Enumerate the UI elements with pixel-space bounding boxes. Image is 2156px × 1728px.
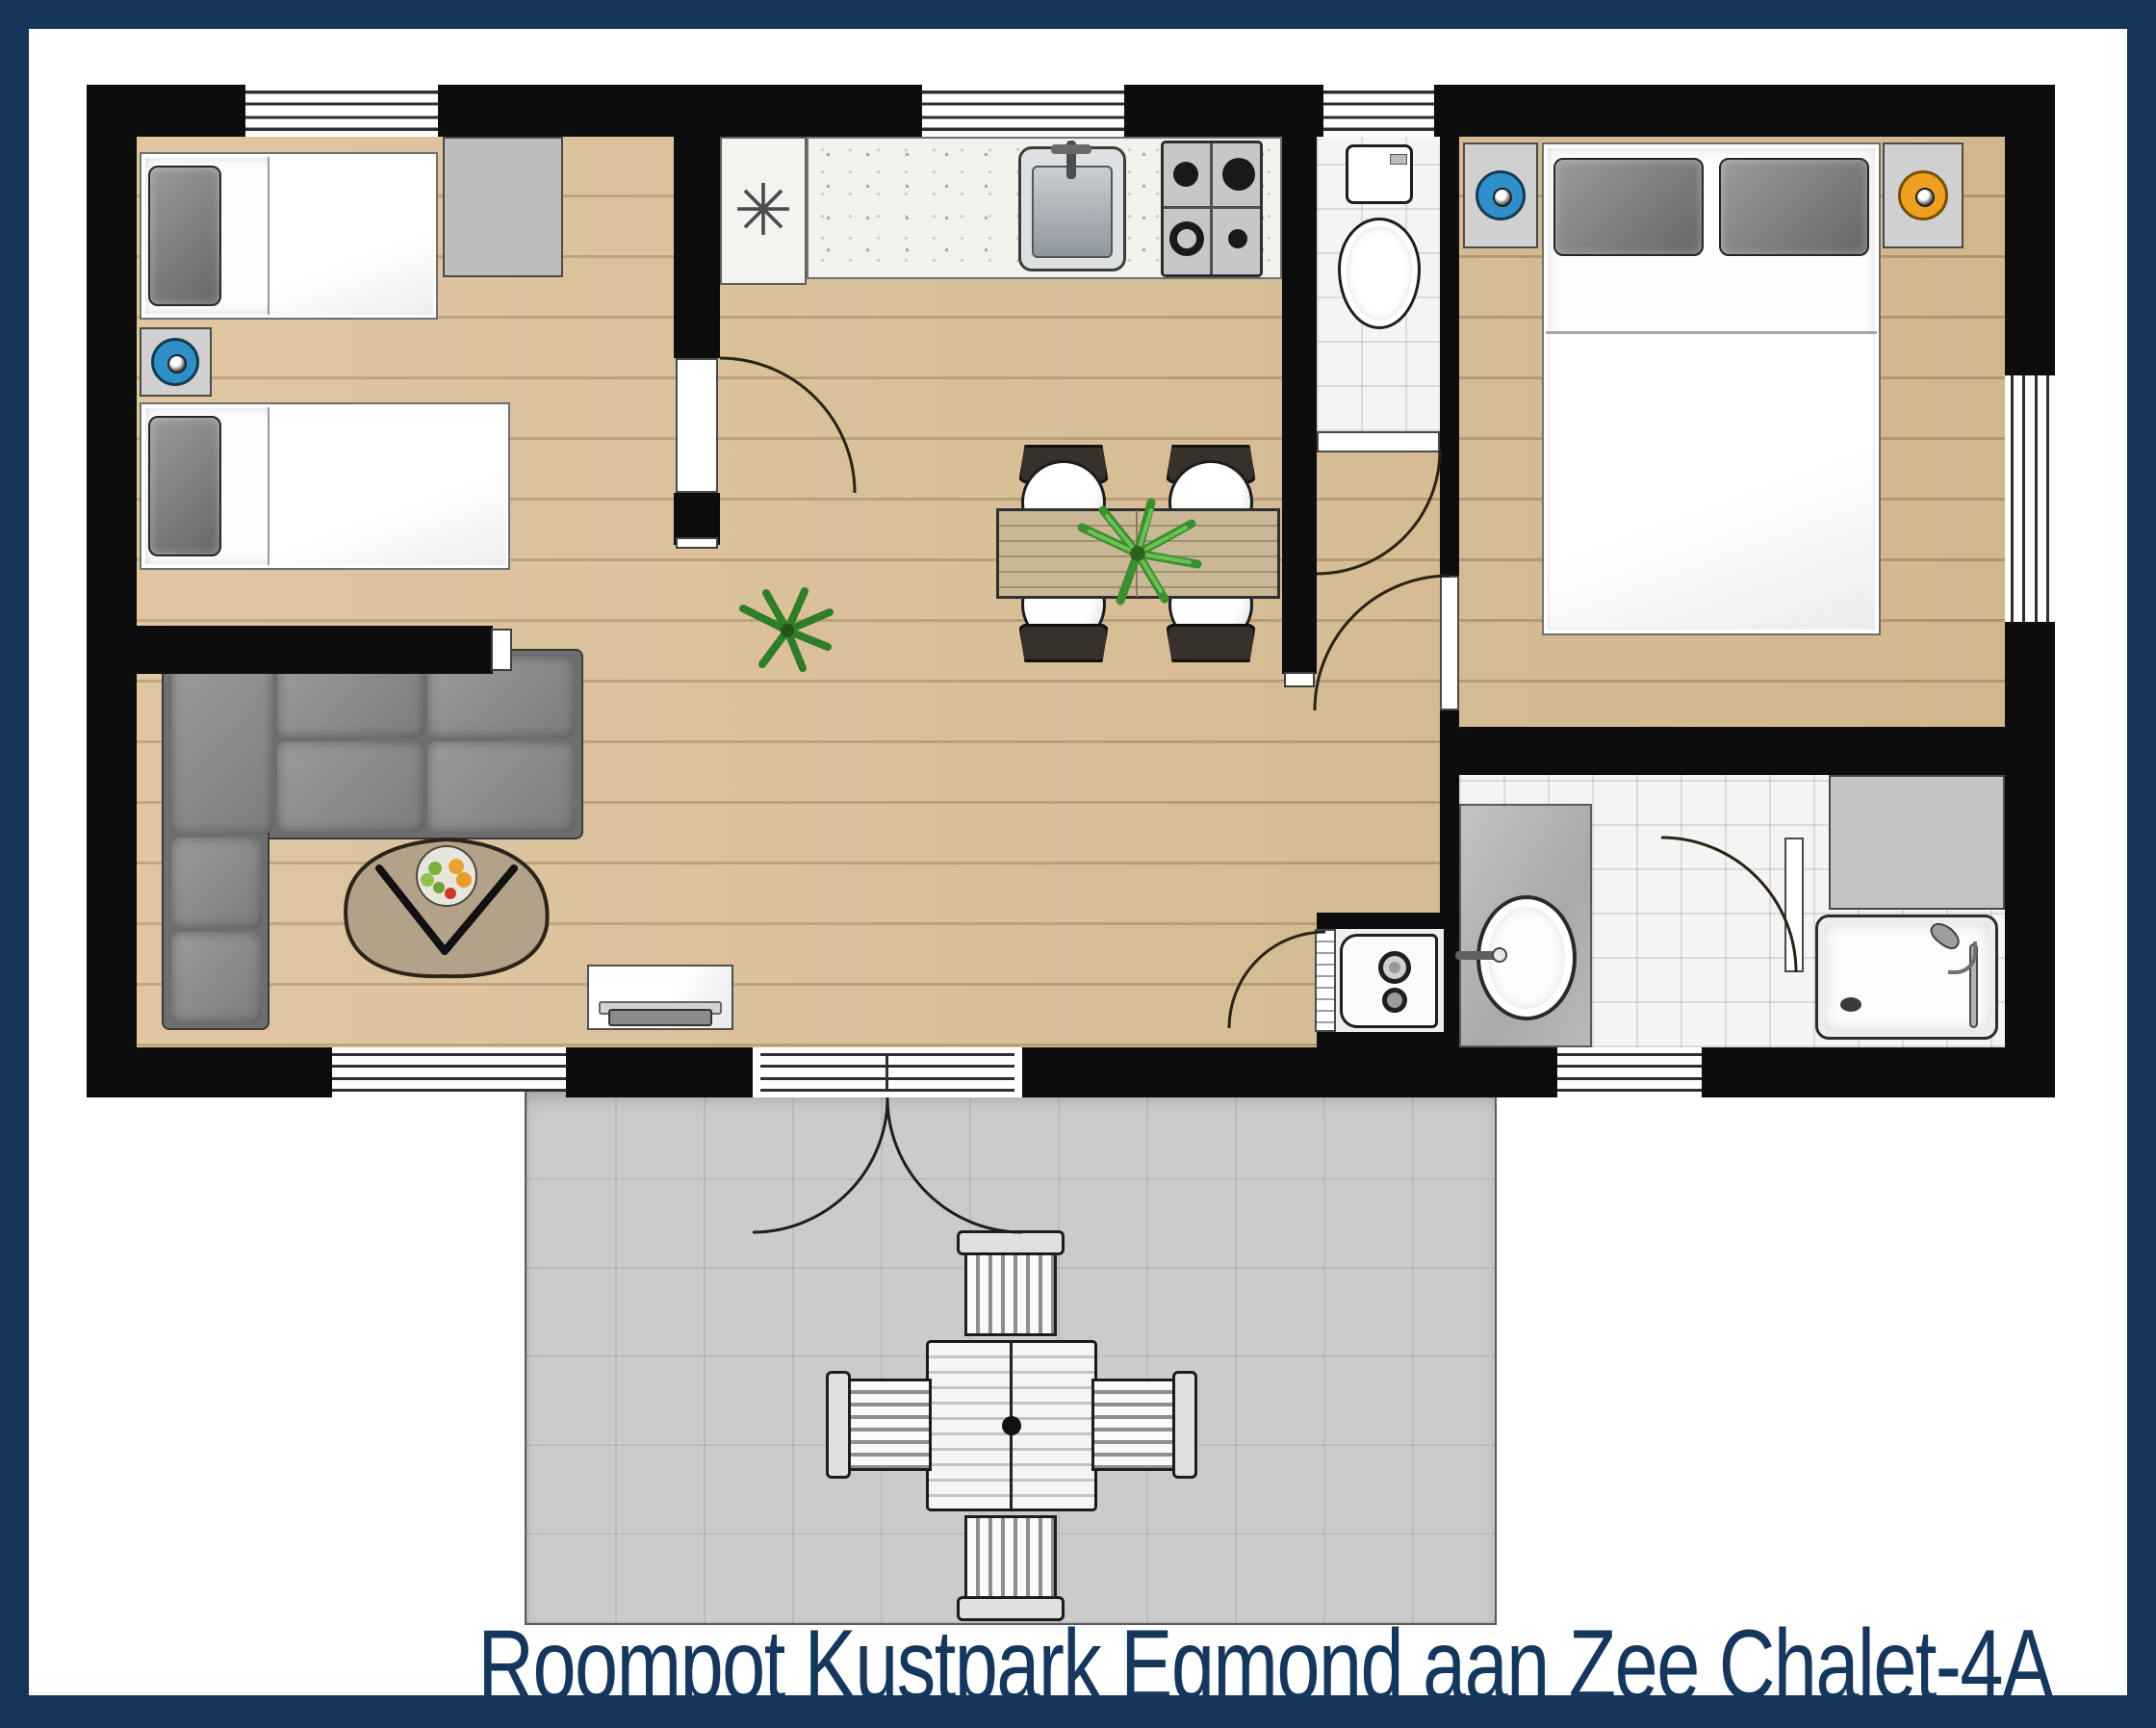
bedroom2-doorway xyxy=(1440,576,1459,710)
sofa-seat-cushion-2 xyxy=(427,741,575,832)
wall-cap-3 xyxy=(1284,672,1315,687)
outer-wall-left xyxy=(87,85,137,1097)
bedroom1-wardrobe xyxy=(443,137,563,277)
bedroom1-doorway xyxy=(676,358,718,493)
stove-grid-v xyxy=(1210,143,1213,274)
stove-burner-tl xyxy=(1173,162,1198,187)
window-bedroom2-right xyxy=(2011,375,2049,622)
terrace-door-center-split xyxy=(885,1053,888,1092)
single-bed-1-pillow xyxy=(148,166,221,306)
washer-valve-small xyxy=(1382,988,1407,1013)
double-bed-pillow-right xyxy=(1719,158,1869,256)
outer-wall-bottom-3 xyxy=(1022,1047,1557,1097)
sofa-chaise-cushion-2 xyxy=(171,932,262,1022)
double-bed-duvet xyxy=(1550,335,1873,628)
toilet-doorway xyxy=(1317,431,1440,452)
bathroom-faucet-knob xyxy=(1492,947,1507,963)
dining-table-split xyxy=(1136,510,1138,597)
bathroom-wardrobe xyxy=(1829,775,2005,910)
double-bed-sheet-fold xyxy=(1546,331,1877,334)
bedroom1-lamp-blue xyxy=(151,338,199,386)
terrace-table-parasol-hole xyxy=(1002,1416,1021,1435)
wall-cap-2 xyxy=(491,629,512,671)
terrace-chair-right-backrest xyxy=(1172,1371,1197,1479)
terrace-chair-top-backrest xyxy=(957,1230,1065,1255)
sofa-chaise-cushion-1 xyxy=(171,838,262,928)
outer-wall-top-1 xyxy=(87,85,245,137)
freezer-asterisk-icon: ✳ xyxy=(733,175,793,246)
sofa-corner-cushion xyxy=(171,657,273,834)
floor-plan-page: ✳ xyxy=(0,0,2156,1728)
outer-wall-bottom-1 xyxy=(87,1047,332,1097)
wall-toilet-bedroom2-top xyxy=(1440,137,1459,576)
tv-screen xyxy=(608,1009,712,1026)
outer-wall-top-4 xyxy=(1434,85,2055,137)
kitchen-faucet-handle xyxy=(1051,144,1091,154)
terrace-chair-left xyxy=(847,1379,932,1471)
kitchen-sink-basin xyxy=(1032,166,1113,258)
dining-chair-back-bl xyxy=(1018,624,1109,662)
stove-burner-bl xyxy=(1169,221,1204,256)
wall-bedroom2-bathroom xyxy=(1440,727,2005,775)
outer-wall-top-3 xyxy=(1124,85,1323,137)
single-bed-1-duvet xyxy=(268,157,433,315)
wall-toilet-bedroom2-stub xyxy=(1440,710,1459,727)
double-bed-pillow-left xyxy=(1553,158,1704,256)
outer-wall-right-bottom xyxy=(2005,622,2055,1097)
bedroom2-lamp-orange xyxy=(1898,170,1948,220)
window-toilet xyxy=(1323,90,1434,131)
dining-chair-back-br xyxy=(1166,624,1256,662)
dining-table xyxy=(996,508,1280,599)
shower-drain xyxy=(1840,997,1861,1012)
wall-kitchen-toilet xyxy=(1282,137,1317,674)
plan-caption: Roompot Kustpark Egmond aan Zee Chalet-4… xyxy=(477,1625,2052,1706)
closet-louver-door xyxy=(1315,929,1336,1032)
single-bed-2-duvet xyxy=(268,407,505,565)
sofa-seat-cushion-1 xyxy=(277,741,424,832)
wall-hall-bathroom xyxy=(1440,775,1459,913)
washer-valve-large xyxy=(1378,951,1411,984)
fridge-freezer: ✳ xyxy=(720,137,807,285)
bedroom2-lamp-blue xyxy=(1476,170,1526,220)
wall-bedroom1-kitchen-top xyxy=(674,137,720,358)
wall-cap-1 xyxy=(676,537,718,549)
single-bed-2-pillow xyxy=(148,416,221,556)
window-bathroom xyxy=(1557,1053,1702,1092)
window-living-room xyxy=(332,1053,566,1092)
window-kitchen xyxy=(922,90,1124,131)
terrace-chair-right xyxy=(1091,1379,1176,1471)
outer-wall-top-2 xyxy=(438,85,922,137)
terrace-chair-bottom xyxy=(964,1515,1057,1600)
outer-wall-bottom-4 xyxy=(1702,1047,2055,1097)
toilet-flush-button xyxy=(1390,154,1407,165)
terrace-chair-left-backrest xyxy=(826,1371,851,1479)
stove-burner-br xyxy=(1228,229,1247,248)
outer-wall-bottom-2 xyxy=(566,1047,753,1097)
terrace-chair-top xyxy=(964,1251,1057,1336)
stove-burner-tr xyxy=(1222,158,1255,191)
window-bedroom1 xyxy=(245,90,438,131)
bathroom-door-leaf xyxy=(1784,838,1804,972)
wall-bedroom1-bottom xyxy=(137,626,493,674)
